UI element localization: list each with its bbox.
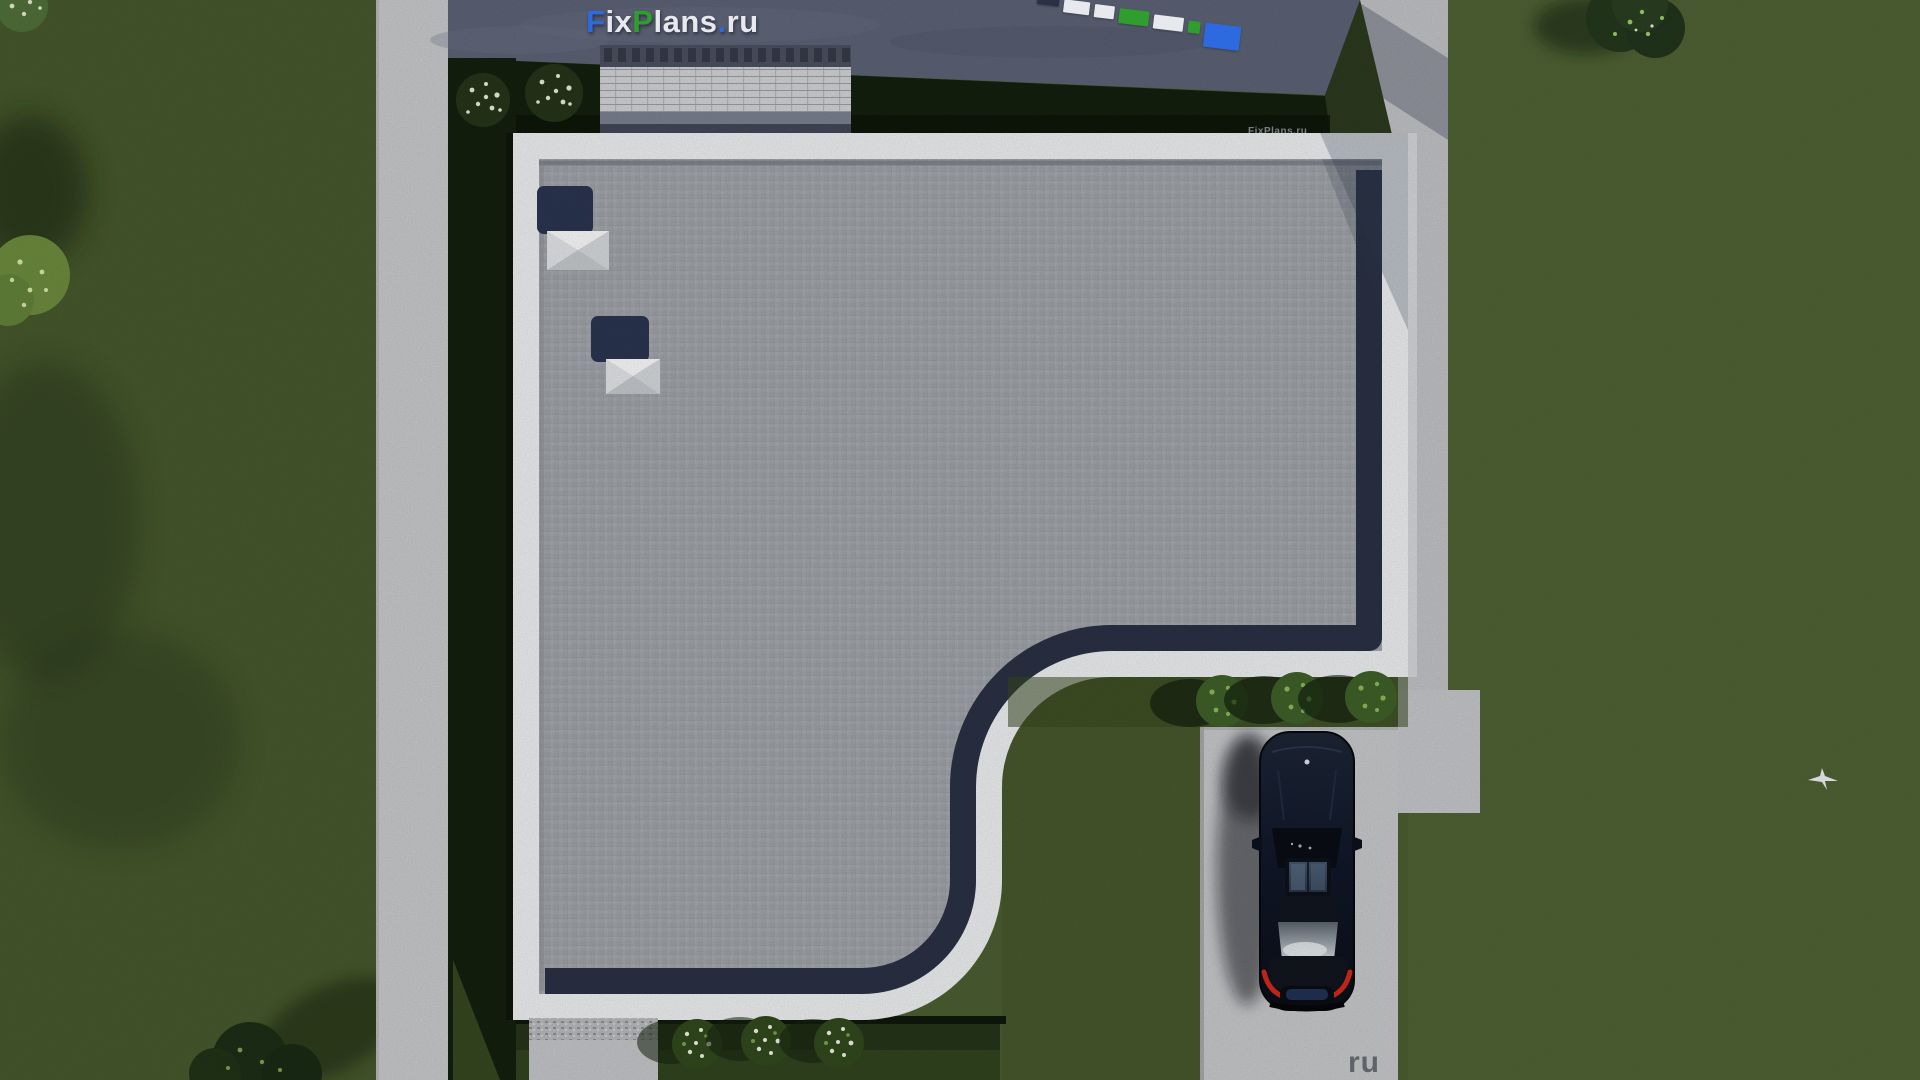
watermark-block <box>1063 0 1090 15</box>
watermark-block <box>1094 4 1115 19</box>
aerial-view <box>0 0 1920 1080</box>
watermark-block <box>1118 8 1150 27</box>
logo-letter: P <box>632 4 653 39</box>
logo-letter: ru <box>727 4 759 39</box>
watermark-block <box>1203 23 1242 51</box>
watermark-block <box>1187 21 1200 34</box>
noise-overlay <box>0 0 1920 1080</box>
logo-letter: . <box>718 4 727 39</box>
watermark-block <box>1153 14 1184 32</box>
site-plan-render: FixPlans.ru FixPlans.ru ru <box>0 0 1920 1080</box>
watermark-small: FixPlans.ru <box>1248 126 1307 137</box>
logo-letter: F <box>586 4 605 39</box>
watermark-logo: FixPlans.ru <box>586 4 759 40</box>
logo-letter: lans <box>653 4 717 39</box>
watermark-corner: ru <box>1348 1046 1380 1080</box>
watermark-block <box>1037 0 1060 7</box>
logo-letter: ix <box>605 4 632 39</box>
